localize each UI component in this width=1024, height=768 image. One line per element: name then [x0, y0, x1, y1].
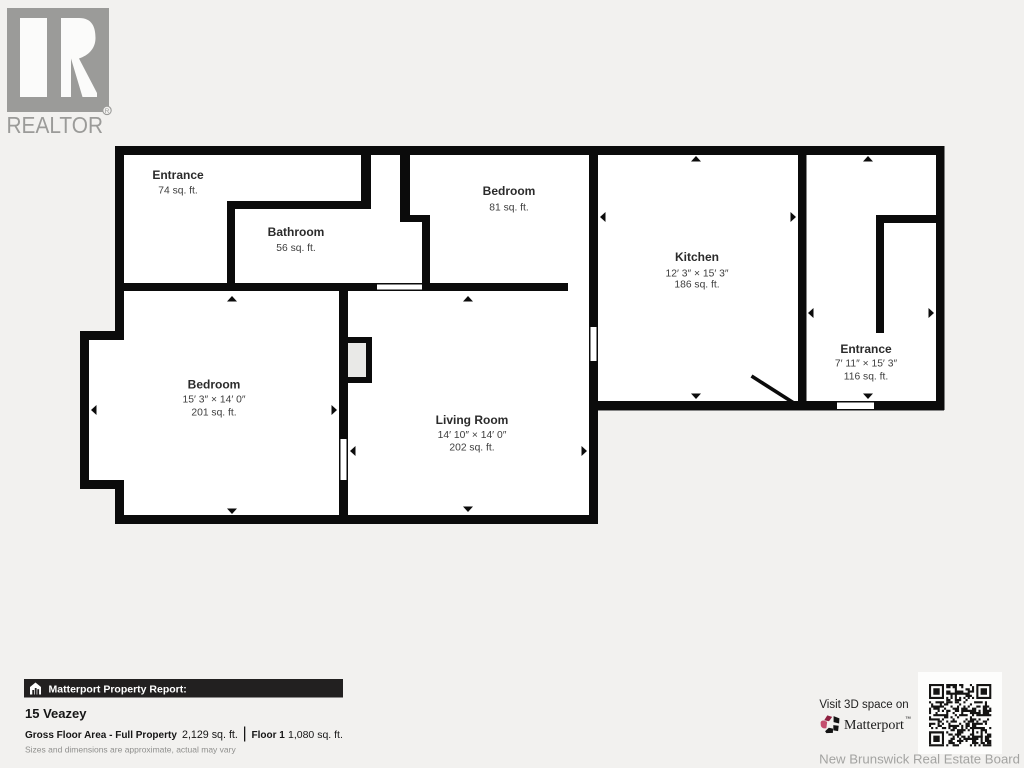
svg-text:Matterport: Matterport — [844, 718, 904, 733]
svg-text:15′ 3″ × 14′ 0″: 15′ 3″ × 14′ 0″ — [183, 395, 246, 406]
svg-text:Bathroom: Bathroom — [268, 225, 325, 239]
svg-text:56 sq. ft.: 56 sq. ft. — [276, 243, 316, 254]
svg-text:201 sq. ft.: 201 sq. ft. — [191, 408, 236, 419]
svg-text:Floor 1: Floor 1 — [252, 730, 286, 741]
svg-text:Visit 3D space on: Visit 3D space on — [819, 699, 908, 711]
svg-text:Living Room: Living Room — [436, 413, 509, 427]
svg-text:Bedroom: Bedroom — [483, 184, 536, 198]
svg-text:R: R — [105, 108, 110, 115]
svg-text:Kitchen: Kitchen — [675, 250, 719, 264]
svg-text:New Brunswick Real Estate Boar: New Brunswick Real Estate Board — [819, 752, 1020, 767]
svg-text:REALTOR: REALTOR — [7, 112, 104, 138]
svg-text:Gross Floor Area - Full Proper: Gross Floor Area - Full Property — [25, 730, 177, 741]
svg-text:Entrance: Entrance — [840, 342, 892, 356]
svg-text:12′ 3″ × 15′ 3″: 12′ 3″ × 15′ 3″ — [666, 269, 729, 280]
svg-text:186 sq. ft.: 186 sq. ft. — [674, 280, 719, 291]
svg-text:7′ 11″ × 15′ 3″: 7′ 11″ × 15′ 3″ — [835, 359, 898, 370]
svg-text:74 sq. ft.: 74 sq. ft. — [158, 186, 198, 197]
svg-text:81 sq. ft.: 81 sq. ft. — [489, 203, 529, 214]
svg-text:2,129 sq. ft.: 2,129 sq. ft. — [182, 729, 238, 741]
svg-text:Sizes and dimensions are appro: Sizes and dimensions are approximate, ac… — [25, 745, 236, 755]
svg-text:Matterport Property Report:: Matterport Property Report: — [49, 684, 187, 696]
svg-text:15 Veazey: 15 Veazey — [25, 706, 87, 721]
svg-text:Entrance: Entrance — [152, 168, 204, 182]
svg-text:202 sq. ft.: 202 sq. ft. — [449, 443, 494, 454]
svg-text:116 sq. ft.: 116 sq. ft. — [844, 372, 888, 383]
svg-text:1,080 sq. ft.: 1,080 sq. ft. — [288, 729, 343, 741]
svg-text:14′ 10″ × 14′ 0″: 14′ 10″ × 14′ 0″ — [438, 430, 507, 441]
svg-text:™: ™ — [905, 716, 911, 723]
svg-text:Bedroom: Bedroom — [188, 378, 241, 392]
